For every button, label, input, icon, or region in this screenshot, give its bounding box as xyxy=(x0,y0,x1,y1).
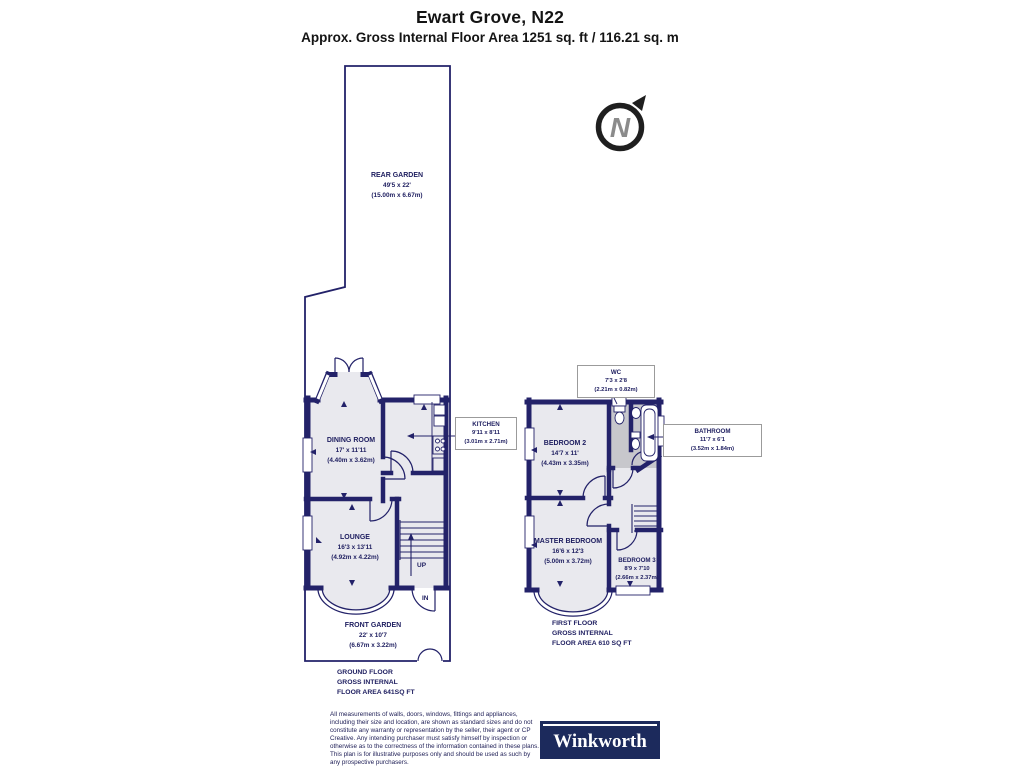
master-bay-area xyxy=(536,590,610,614)
toilet-icon xyxy=(632,439,640,450)
dining-room-label: DINING ROOM 17' x 11'11 (4.40m x 3.62m) xyxy=(296,436,406,466)
bedroom3-label: BEDROOM 3 8'9 x 7'10 (2.66m x 2.37m) xyxy=(598,556,676,583)
winkworth-logo-text: Winkworth xyxy=(553,731,647,753)
front-garden-label: FRONT GARDEN 22' x 10'7 (6.67m x 3.22m) xyxy=(313,621,433,651)
compass-letter: N xyxy=(610,112,631,143)
compass-icon: N xyxy=(599,95,647,149)
floorplan-page: Ewart Grove, N22 Approx. Gross Internal … xyxy=(0,0,1024,768)
wc-label: WC 7'3 x 2'8 (2.21m x 0.82m) xyxy=(577,365,655,398)
floorplan-drawing: N xyxy=(0,0,1024,768)
entrance-in-label: IN xyxy=(422,595,429,602)
bedroom2-label: BEDROOM 2 14'7 x 11' (4.43m x 3.35m) xyxy=(515,439,615,469)
kitchen-window-icon xyxy=(414,395,440,404)
ground-floor-area-label: GROUND FLOOR GROSS INTERNAL FLOOR AREA 6… xyxy=(337,668,467,698)
sink-icon xyxy=(632,408,641,419)
rear-garden-label: REAR GARDEN 49'5 x 22' (15.00m x 6.67m) xyxy=(327,171,467,201)
first-floor-area-label: FIRST FLOOR GROSS INTERNAL FLOOR AREA 61… xyxy=(552,619,682,649)
toilet-tank xyxy=(631,432,640,438)
lounge-label: LOUNGE 16'3 x 13'11 (4.92m x 4.22m) xyxy=(300,533,410,563)
bathroom-label: BATHROOM 11'7 x 6'1 (3.52m x 1.84m) xyxy=(663,424,762,457)
stairs-up-label: UP xyxy=(417,562,426,569)
kitchen-label: KITCHEN 9'11 x 8'11 (3.01m x 2.71m) xyxy=(455,417,517,450)
wc-toilet-icon xyxy=(615,412,624,424)
winkworth-logo: Winkworth xyxy=(540,721,660,759)
wc-toilet-tank xyxy=(614,406,625,412)
ground-floor-plan xyxy=(303,66,450,664)
disclaimer-text: All measurements of walls, doors, window… xyxy=(330,711,541,766)
garden-gate-opening xyxy=(417,658,443,664)
bedroom3-window-icon xyxy=(616,586,650,595)
